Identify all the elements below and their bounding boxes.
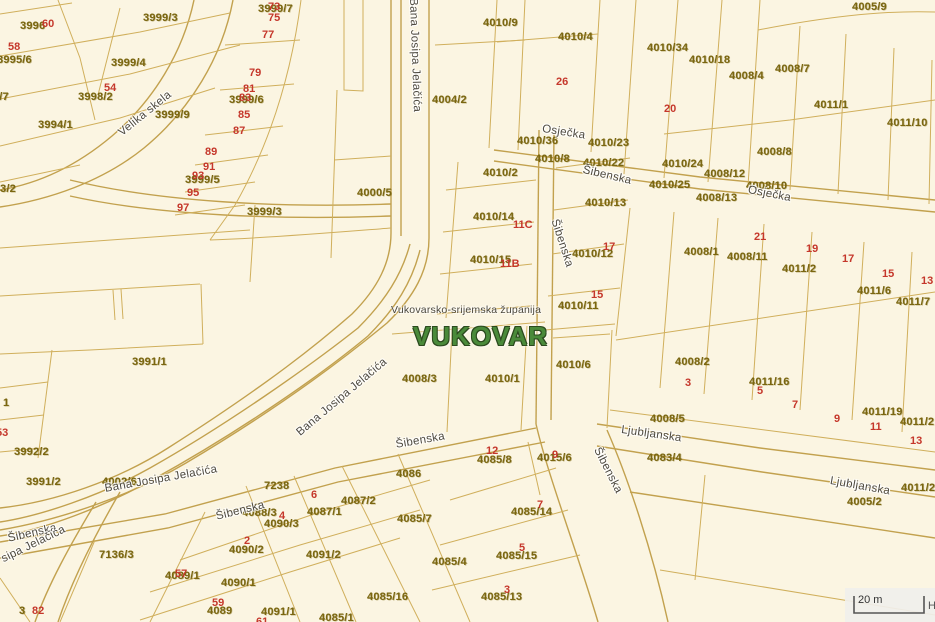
- house-number-label: 89: [205, 147, 217, 158]
- street-name-label: Bana Josipa Jelačića: [295, 357, 390, 439]
- parcel-label: 4008/12: [704, 169, 745, 180]
- parcel-label: 3999/3: [143, 13, 178, 24]
- parcel-label: 4010/24: [662, 159, 703, 170]
- parcel-label: 3991/2: [26, 477, 61, 488]
- house-number-label: 3: [685, 378, 691, 389]
- parcel-label: 4011/2: [900, 417, 934, 428]
- parcel-label: 4008/4: [729, 71, 764, 82]
- parcel-label: 4005/2: [847, 497, 882, 508]
- parcel-label: 4090/2: [229, 545, 264, 556]
- parcel-label: 3: [19, 606, 25, 617]
- parcel-label: 4008/3: [402, 374, 437, 385]
- house-number-label: 11C: [513, 220, 533, 231]
- parcel-label: 4008/8: [757, 147, 792, 158]
- house-number-label: 15: [882, 269, 894, 280]
- parcel-label: 4010/2: [483, 168, 518, 179]
- street-name-label: Ljubljanska: [620, 425, 682, 445]
- house-number-label: 17: [603, 242, 615, 253]
- house-number-label: 58: [8, 42, 20, 53]
- house-number-label: 91: [203, 162, 215, 173]
- house-number-label: 19: [806, 244, 818, 255]
- house-number-label: 11: [870, 422, 882, 433]
- parcel-label: 4090/1: [221, 578, 256, 589]
- house-number-label: 17: [842, 254, 854, 265]
- parcel-label: 3995/6: [0, 55, 32, 66]
- parcel-label: 4010/25: [649, 180, 690, 191]
- house-number-label: 87: [233, 126, 245, 137]
- parcel-label: 4008/5: [650, 414, 685, 425]
- parcel-label: 3994/1: [38, 120, 73, 131]
- house-number-label: 57: [175, 569, 187, 580]
- parcel-label: 4008/7: [775, 64, 810, 75]
- house-number-label: 13: [910, 436, 922, 447]
- parcel-label: 3998/7: [0, 92, 9, 103]
- street-name-label: Šibenska: [591, 446, 624, 496]
- house-number-label: 75: [268, 13, 280, 24]
- parcel-label: 4011/2: [782, 264, 816, 275]
- parcel-label: 4010/36: [517, 136, 558, 147]
- house-number-label: 53: [0, 428, 8, 439]
- parcel-label: 3/2: [0, 184, 16, 195]
- parcel-label: 4085/4: [432, 557, 467, 568]
- parcel-label: 4085/16: [367, 592, 408, 603]
- scale-bracket-icon: [853, 590, 933, 616]
- house-number-label: 7: [537, 500, 543, 511]
- parcel-label: 4011/16: [749, 377, 790, 388]
- house-number-label: 26: [556, 77, 568, 88]
- house-number-label: 11B: [500, 259, 520, 270]
- parcel-label: 4010/13: [585, 198, 626, 209]
- house-number-label: 15: [591, 290, 603, 301]
- street-name-label: Šibenska: [581, 165, 632, 187]
- parcel-label: 4083/4: [647, 453, 682, 464]
- parcel-label: 4085/15: [496, 551, 537, 562]
- county-label: Vukovarsko-srijemska županija: [391, 304, 541, 316]
- parcel-label: 4085/7: [397, 514, 432, 525]
- house-number-label: 85: [238, 110, 250, 121]
- house-number-label: 20: [664, 104, 676, 115]
- house-number-label: 82: [32, 606, 44, 617]
- street-name-label: Šibenska: [548, 218, 574, 269]
- map-canvas[interactable]: 3996603999/33999/77375773995/63999/45854…: [0, 0, 935, 622]
- parcel-label: 3991/1: [132, 357, 167, 368]
- parcel-label: 4010/11: [558, 301, 599, 312]
- parcel-label: 4008/1: [684, 247, 719, 258]
- parcel-label: 4010/23: [588, 138, 629, 149]
- house-number-label: 83: [239, 93, 251, 104]
- parcel-label: 4011/6: [857, 286, 891, 297]
- parcel-label: 4010/1: [485, 374, 520, 385]
- parcel-label: 3999/9: [155, 110, 190, 121]
- house-number-label: 5: [519, 543, 525, 554]
- parcel-label: 4010/4: [558, 32, 593, 43]
- house-number-label: 3: [504, 585, 510, 596]
- parcel-label: 3998/2: [78, 92, 113, 103]
- parcel-label: 4010/9: [483, 18, 518, 29]
- parcel-label: 7136/3: [99, 550, 134, 561]
- parcel-label: 4085/13: [481, 592, 522, 603]
- street-name-label: Šibenska: [395, 431, 446, 451]
- parcel-label: 4089: [207, 606, 232, 617]
- parcel-label: 4087/1: [307, 507, 342, 518]
- house-number-label: 95: [187, 188, 199, 199]
- parcel-label: 4085/1: [319, 613, 354, 622]
- house-number-label: 77: [262, 30, 274, 41]
- street-name-label: Šibenska: [215, 500, 266, 523]
- parcel-label: 4008/2: [675, 357, 710, 368]
- house-number-label: 9: [834, 414, 840, 425]
- parcel-label: 4086: [396, 469, 421, 480]
- parcel-label: 4004/2: [432, 95, 467, 106]
- parcel-label: 4008/11: [727, 252, 768, 263]
- parcel-label: 4010/8: [535, 154, 570, 165]
- parcel-label: 4011/2: [901, 483, 935, 494]
- house-number-label: 21: [754, 232, 766, 243]
- house-number-label: 13: [921, 276, 933, 287]
- parcel-label: 4085/14: [511, 507, 552, 518]
- parcel-label: 4011/19: [862, 407, 903, 418]
- parcel-label: 4090/3: [264, 519, 299, 530]
- attribution-text: H: [928, 600, 935, 612]
- parcel-label: 7238: [264, 481, 289, 492]
- parcel-label: 4091/2: [306, 550, 341, 561]
- parcel-label: 4008/13: [696, 193, 737, 204]
- parcel-label: 3999/4: [111, 58, 146, 69]
- house-number-label: 6: [311, 490, 317, 501]
- parcel-label: 4010/18: [689, 55, 730, 66]
- house-number-label: 7: [792, 400, 798, 411]
- parcel-label: 4087/2: [341, 496, 376, 507]
- parcel-label: 4085/8: [477, 455, 512, 466]
- street-name-label: Bana Josipa Jelačića: [407, 0, 422, 112]
- parcel-label: 4011/10: [887, 118, 928, 129]
- parcel-label: 3992/2: [14, 447, 49, 458]
- parcel-label: 4005/9: [852, 2, 887, 13]
- house-number-label: 79: [249, 68, 261, 79]
- parcel-label: 4000/5: [357, 188, 392, 199]
- parcel-label: 4011/7: [896, 297, 930, 308]
- parcel-label: 3999/3: [247, 207, 282, 218]
- house-number-label: 5: [757, 386, 763, 397]
- parcel-label: 4010/6: [556, 360, 591, 371]
- parcel-label: 1: [3, 398, 9, 409]
- parcel-label: 4010/14: [473, 212, 514, 223]
- scale-bar: 20 m H: [845, 588, 935, 622]
- house-number-label: 97: [177, 203, 189, 214]
- parcel-label: 4011/1: [814, 100, 848, 111]
- street-name-label: Bana Josipa Jelačića: [104, 464, 218, 495]
- house-number-label: 61: [256, 617, 268, 622]
- city-label: VUKOVAR: [413, 321, 548, 352]
- house-number-label: 60: [42, 19, 54, 30]
- street-name-label: Ljubljanska: [829, 476, 891, 498]
- parcel-label: 4010/34: [647, 43, 688, 54]
- house-number-label: 9: [552, 450, 558, 461]
- house-number-label: 93: [192, 171, 204, 182]
